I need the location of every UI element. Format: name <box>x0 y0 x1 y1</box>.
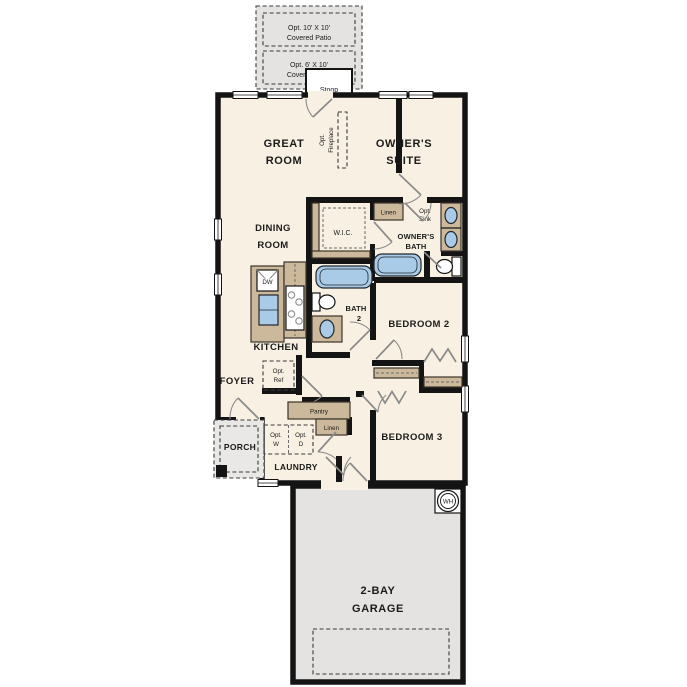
garage: WH 2-BAY GARAGE <box>293 482 463 682</box>
owners-suite-label-1: OWNER'S <box>376 138 432 150</box>
wic-label: W.I.C. <box>333 230 352 237</box>
linen-closet-hall: Linen <box>316 419 347 435</box>
wall-bedroom3-west <box>370 410 376 483</box>
window <box>462 336 469 362</box>
garage-entry-gap <box>321 482 368 490</box>
bath2-toilet <box>312 293 335 311</box>
pantry-label: Pantry <box>310 409 329 416</box>
island-sink <box>259 295 278 325</box>
wall-suite-south-b <box>427 197 465 203</box>
porch-post <box>216 465 227 477</box>
pantry: Pantry <box>288 402 350 419</box>
wall-linen-east <box>347 417 352 435</box>
window <box>462 386 469 412</box>
dishwasher: DW <box>257 270 278 291</box>
window <box>258 480 278 487</box>
bedroom3-label: BEDROOM 3 <box>381 432 442 443</box>
fireplace-label-1: Opt. <box>319 134 326 146</box>
opt-d-label-2: D <box>299 441 304 448</box>
wall-bedroom2-north <box>374 277 465 283</box>
wall-suite-south-a <box>311 197 403 203</box>
bath2-label-1: BATH <box>345 304 366 313</box>
patio-10x10-label-1: Opt. 10' X 10' <box>288 25 330 32</box>
porch-label: PORCH <box>224 442 256 452</box>
wall-vanity-toilet <box>441 251 465 256</box>
garage-floor <box>293 486 463 682</box>
wall-bath2-south <box>306 352 350 358</box>
window <box>267 92 302 99</box>
wall-closet-north <box>372 360 424 366</box>
opt-w-label-1: Opt. <box>270 432 282 439</box>
fireplace-label-2: Fireplace <box>328 127 335 153</box>
water-heater-label: WH <box>443 499 453 506</box>
wall-pantry-north <box>302 397 350 402</box>
laundry-label: LAUNDRY <box>274 462 317 472</box>
wall-bath2-north <box>306 258 374 264</box>
back-door-opening <box>308 91 333 100</box>
dining-room-label-2: ROOM <box>257 240 288 251</box>
great-room-label-1: GREAT <box>264 138 305 150</box>
garage-label-2: GARAGE <box>352 603 404 615</box>
window <box>215 219 222 240</box>
garage-label-1: 2-BAY <box>361 585 396 597</box>
opt-w-label-2: W <box>273 441 279 448</box>
wic-shelf-south <box>312 251 370 258</box>
water-heater: WH <box>435 489 461 513</box>
opt-ref-label-1: Opt. <box>273 368 285 375</box>
owners-sink-2 <box>445 232 457 248</box>
owners-sink-1 <box>445 208 457 224</box>
floor-plan-drawing: Opt. 10' X 10' Covered Patio Opt. 6' X 1… <box>0 0 687 687</box>
window <box>215 274 222 295</box>
wall-bedroom2-west <box>370 283 376 340</box>
window <box>233 92 258 99</box>
owners-suite-label-2: SUITE <box>386 155 421 167</box>
opt-d-label-1: Opt. <box>295 432 307 439</box>
wall-kitchen-east <box>306 197 312 358</box>
linen-owner-label: Linen <box>381 210 397 217</box>
patio-6x10-label-1: Opt. 6' X 10' <box>290 62 328 69</box>
bedroom2-label: BEDROOM 2 <box>388 319 449 330</box>
floor-plan-page: Opt. 10' X 10' Covered Patio Opt. 6' X 1… <box>0 0 687 687</box>
foyer-label: FOYER <box>220 376 255 387</box>
opt-ref-label-2: Ref <box>274 377 284 384</box>
window <box>379 92 407 99</box>
wic-shelf-west <box>312 203 319 258</box>
wall-closet-south <box>419 387 465 393</box>
wall-ref-south <box>262 388 302 394</box>
range-cooktop <box>286 286 304 330</box>
great-room-label-2: ROOM <box>266 155 303 167</box>
dining-room-label-1: DINING <box>255 223 291 234</box>
linen-hall-label: Linen <box>324 425 340 432</box>
window <box>409 92 433 99</box>
bath2-label-2: 2 <box>357 314 361 323</box>
kitchen-label: KITCHEN <box>253 342 298 353</box>
dishwasher-label: DW <box>262 279 272 286</box>
porch: PORCH <box>214 420 264 478</box>
owners-bath-label-2: BATH <box>405 242 426 251</box>
patio-10x10-label-2: Covered Patio <box>287 35 331 42</box>
bath2-sink <box>320 320 334 338</box>
linen-closet-owner: Linen <box>374 203 403 220</box>
owners-bath-label-1: OWNER'S <box>398 232 435 241</box>
